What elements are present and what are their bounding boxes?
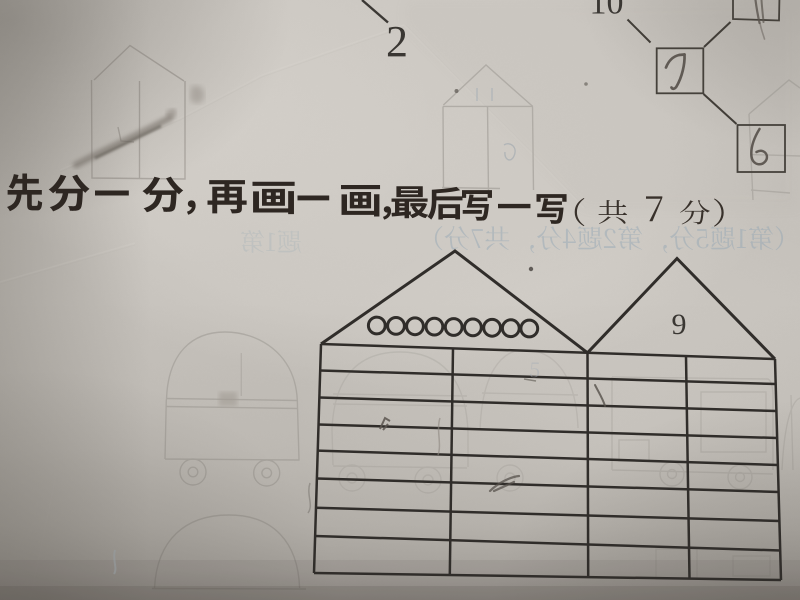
svg-text:9: 9 bbox=[672, 308, 687, 341]
svg-text:10: 10 bbox=[590, 0, 624, 22]
svg-text:2: 2 bbox=[386, 17, 408, 66]
